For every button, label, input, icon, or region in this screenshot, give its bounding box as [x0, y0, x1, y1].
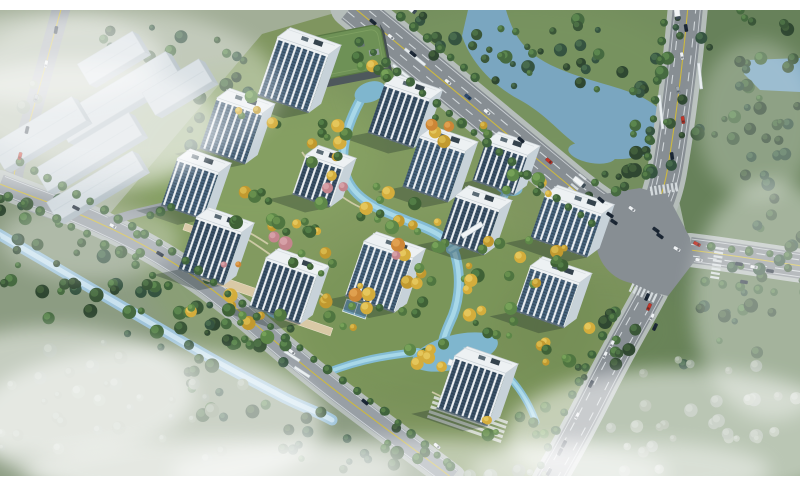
tree-highlight — [563, 64, 567, 68]
tree-highlight — [205, 320, 211, 326]
street-tree-highlight — [472, 74, 477, 79]
tree-highlight — [429, 51, 435, 57]
tree-highlight — [409, 198, 416, 205]
street-tree-highlight — [599, 333, 604, 338]
tree-highlight — [332, 120, 339, 127]
tree-highlight — [503, 186, 508, 191]
tree-highlight — [138, 308, 142, 312]
street-tree-highlight — [157, 208, 162, 213]
street-tree-highlight — [311, 357, 315, 361]
tree-highlight — [465, 275, 472, 282]
street-tree-highlight — [407, 79, 410, 82]
tree-highlight — [307, 157, 314, 164]
tree-highlight — [409, 221, 414, 226]
tree-highlight — [484, 416, 489, 421]
street-tree-highlight — [395, 420, 399, 424]
street-tree-highlight — [354, 388, 358, 392]
tree-highlight — [329, 260, 334, 265]
tree-highlight — [323, 294, 328, 299]
tree-highlight — [487, 47, 491, 51]
car-windshield — [682, 120, 685, 122]
tree-highlight — [275, 309, 282, 316]
street-tree-highlight — [565, 204, 569, 208]
tree-highlight — [298, 250, 302, 254]
tree-highlight — [533, 279, 538, 284]
tree-highlight — [222, 319, 228, 325]
tree-highlight — [510, 61, 513, 64]
tree-highlight — [572, 14, 579, 21]
tree-highlight — [374, 65, 380, 71]
car-windshield — [681, 56, 684, 58]
tree-highlight — [246, 341, 251, 346]
street-tree-highlight — [646, 136, 651, 141]
tree-highlight — [289, 258, 295, 264]
tree-highlight — [240, 187, 247, 194]
tree-highlight — [498, 26, 502, 30]
tree-highlight — [630, 121, 636, 127]
tree-highlight — [630, 88, 635, 93]
tree-highlight — [423, 352, 430, 359]
street-tree-highlight — [434, 100, 438, 104]
street-tree-highlight — [610, 314, 615, 319]
tree-highlight — [327, 171, 333, 177]
tree-highlight — [361, 303, 368, 310]
tree-highlight — [621, 182, 626, 187]
tree-highlight — [675, 357, 679, 361]
tree-highlight — [439, 136, 446, 143]
street-tree-highlight — [578, 212, 581, 215]
tree-highlight — [349, 303, 353, 307]
tree-highlight — [258, 189, 263, 194]
tree-highlight — [533, 173, 540, 180]
tree-highlight — [696, 33, 703, 40]
tree-highlight — [262, 332, 267, 337]
tree-highlight — [511, 83, 515, 87]
tree-highlight — [318, 129, 323, 134]
tree-highlight — [483, 429, 490, 436]
mist-patch — [0, 200, 180, 280]
tree-highlight — [412, 358, 419, 365]
tree-highlight — [594, 49, 600, 55]
street-tree-highlight — [459, 120, 463, 124]
tree-highlight — [418, 297, 424, 303]
tree-highlight — [419, 12, 424, 17]
tree-highlight — [664, 119, 667, 122]
car-windshield — [685, 28, 688, 30]
tree-highlight — [466, 263, 470, 267]
tree-highlight — [439, 339, 445, 345]
car-windshield — [671, 156, 674, 158]
tree-highlight — [506, 333, 509, 336]
tree-highlight — [492, 77, 496, 81]
tree-highlight — [679, 132, 683, 136]
tree-highlight — [513, 28, 517, 32]
tree-highlight — [602, 171, 606, 175]
street-tree-highlight — [651, 97, 654, 100]
street-tree-highlight — [254, 314, 258, 318]
tree-highlight — [269, 232, 275, 238]
tree-highlight — [174, 307, 182, 315]
tree-highlight — [432, 33, 438, 39]
tree-highlight — [318, 271, 322, 275]
tree-highlight — [592, 179, 596, 183]
street-tree-highlight — [461, 65, 465, 69]
tree-highlight — [577, 59, 582, 64]
tree-highlight — [344, 435, 349, 440]
tree-highlight — [418, 350, 424, 356]
street-tree-highlight — [437, 45, 442, 50]
tree-highlight — [125, 331, 129, 335]
street-tree-highlight — [420, 90, 424, 94]
tree-highlight — [151, 326, 159, 334]
tree-highlight — [576, 40, 582, 46]
tree-highlight — [742, 15, 746, 19]
street-tree-highlight — [447, 111, 451, 115]
tree-highlight — [483, 328, 489, 334]
street-tree-highlight — [225, 291, 229, 295]
tree-highlight — [630, 147, 638, 155]
tree-highlight — [238, 320, 242, 324]
tree-highlight — [340, 323, 344, 327]
tree-highlight — [553, 256, 558, 261]
street-tree-highlight — [589, 220, 593, 224]
tree-highlight — [617, 67, 624, 74]
tree-highlight — [505, 272, 511, 278]
scene-content — [0, 0, 800, 485]
tree-highlight — [538, 49, 541, 52]
tree-highlight — [136, 287, 142, 293]
tree-highlight — [585, 323, 592, 330]
tree-highlight — [386, 221, 394, 229]
tree-highlight — [143, 280, 149, 286]
street-tree-highlight — [5, 193, 10, 198]
tree-highlight — [412, 278, 418, 284]
street-tree-highlight — [383, 59, 388, 64]
tree-highlight — [484, 237, 490, 243]
street-tree-highlight — [297, 345, 301, 349]
tree-highlight — [623, 344, 630, 351]
street-tree-highlight — [397, 13, 402, 18]
tree-highlight — [399, 308, 404, 313]
tree-highlight — [616, 350, 621, 355]
street-tree-highlight — [448, 55, 452, 59]
tree-highlight — [415, 264, 421, 270]
tree-highlight — [495, 239, 501, 245]
tree-highlight — [279, 358, 285, 364]
tree-highlight — [305, 227, 312, 234]
street-tree-highlight — [659, 38, 663, 42]
tree-highlight — [595, 27, 598, 30]
tree-highlight — [319, 120, 324, 125]
street-tree-highlight — [471, 130, 474, 133]
tree-highlight — [480, 122, 484, 126]
tree-highlight — [542, 345, 548, 351]
tree-highlight — [582, 65, 588, 71]
tree-highlight — [377, 210, 382, 215]
tree-highlight — [232, 340, 238, 346]
street-tree-highlight — [168, 204, 172, 208]
tree-highlight — [44, 313, 51, 320]
tree-highlight — [537, 341, 543, 347]
tree-highlight — [69, 278, 75, 284]
tree-highlight — [283, 228, 288, 233]
tree-highlight — [205, 330, 208, 333]
street-tree-highlight — [645, 154, 649, 158]
screenshot-root — [0, 0, 800, 485]
tree-highlight — [444, 122, 450, 128]
tree-highlight — [780, 20, 785, 25]
street-tree-highlight — [657, 57, 661, 61]
tree-highlight — [508, 169, 515, 176]
tree-highlight — [308, 139, 314, 145]
aerial-render-canvas — [0, 0, 800, 485]
tree-highlight — [85, 305, 93, 313]
street-tree-highlight — [410, 23, 415, 28]
tree-highlight — [376, 304, 380, 308]
street-tree-highlight — [282, 335, 286, 339]
tree-highlight — [188, 305, 192, 309]
tree-highlight — [361, 203, 368, 210]
tree-highlight — [334, 137, 342, 145]
tree-highlight — [358, 283, 361, 286]
tree-highlight — [522, 61, 530, 69]
tree-highlight — [546, 191, 550, 195]
tree-highlight — [223, 335, 229, 341]
tree-highlight — [529, 50, 534, 55]
tree-highlight — [302, 218, 306, 222]
tree-highlight — [555, 44, 562, 51]
tree-highlight — [533, 189, 538, 194]
tree-highlight — [473, 320, 476, 323]
tree-highlight — [631, 131, 635, 135]
tree-highlight — [519, 172, 522, 175]
tree-highlight — [357, 213, 362, 218]
tree-highlight — [223, 304, 230, 311]
tree-highlight — [673, 25, 677, 29]
street-tree-highlight — [356, 38, 361, 43]
street-tree-highlight — [150, 273, 154, 277]
tree-highlight — [392, 239, 400, 247]
car-windshield — [677, 90, 680, 92]
tree-highlight — [249, 191, 256, 198]
tree-highlight — [656, 67, 664, 75]
street-tree-highlight — [538, 183, 541, 186]
street-tree-highlight — [211, 279, 215, 283]
bottom-white-band — [0, 476, 800, 485]
street-tree-highlight — [394, 69, 399, 74]
tree-highlight — [124, 306, 132, 314]
tree-highlight — [221, 262, 225, 266]
tree-highlight — [185, 341, 191, 347]
tree-highlight — [111, 286, 116, 291]
tree-highlight — [350, 289, 358, 297]
street-tree-highlight — [496, 149, 500, 153]
tree-highlight — [433, 115, 437, 119]
tree-highlight — [562, 245, 566, 249]
street-tree-highlight — [524, 171, 529, 176]
tree-highlight — [239, 312, 244, 317]
tree-highlight — [377, 197, 381, 201]
tree-highlight — [478, 245, 483, 250]
tree-highlight — [687, 360, 692, 365]
tree-highlight — [629, 164, 637, 172]
street-tree-highlight — [582, 364, 586, 368]
tree-highlight — [575, 364, 579, 368]
street-tree-highlight — [324, 366, 329, 371]
tree-highlight — [207, 302, 211, 306]
tree-highlight — [392, 252, 397, 257]
tree-highlight — [293, 220, 298, 225]
street-tree-highlight — [654, 77, 658, 81]
tree-highlight — [642, 147, 647, 152]
street-tree-highlight — [371, 50, 375, 54]
tree-highlight — [373, 183, 377, 187]
tree-highlight — [324, 134, 328, 138]
tree-highlight — [90, 289, 98, 297]
tree-highlight — [334, 152, 339, 157]
tree-highlight — [469, 42, 474, 47]
tree-highlight — [616, 174, 620, 178]
street-tree-highlight — [424, 35, 429, 40]
tree-highlight — [427, 120, 434, 127]
tree-highlight — [339, 183, 344, 188]
street-tree-highlight — [643, 172, 648, 177]
tree-highlight — [505, 303, 512, 310]
tree-highlight — [464, 309, 471, 316]
street-tree-highlight — [268, 324, 271, 327]
tree-highlight — [749, 18, 754, 23]
tree-highlight — [611, 359, 618, 366]
tree-highlight — [315, 198, 322, 205]
tree-highlight — [402, 276, 409, 283]
tree-highlight — [498, 53, 502, 57]
street-tree-highlight — [661, 20, 665, 24]
tree-highlight — [60, 279, 66, 285]
tree-highlight — [678, 95, 684, 101]
tree-highlight — [405, 344, 412, 351]
tree-highlight — [667, 160, 673, 166]
tree-highlight — [432, 242, 438, 248]
tree-highlight — [412, 309, 417, 314]
street-tree-highlight — [165, 282, 170, 287]
tree-highlight — [612, 187, 618, 193]
tree-highlight — [594, 87, 598, 91]
tree-highlight — [415, 228, 419, 232]
street-tree-highlight — [651, 116, 655, 120]
street-tree-highlight — [589, 352, 593, 356]
street-tree-highlight — [195, 267, 200, 272]
tree-highlight — [527, 70, 530, 73]
tree-highlight — [515, 252, 522, 259]
tree-highlight — [437, 362, 443, 368]
tree-highlight — [481, 55, 486, 60]
tree-highlight — [175, 322, 182, 329]
tree-highlight — [254, 339, 262, 347]
tree-highlight — [551, 246, 558, 253]
street-tree-highlight — [239, 301, 243, 305]
tree-highlight — [363, 288, 371, 296]
tree-highlight — [426, 345, 432, 351]
tree-highlight — [493, 430, 496, 433]
tree-highlight — [525, 44, 528, 47]
tree-highlight — [677, 32, 681, 36]
tree-highlight — [307, 264, 311, 268]
tree-highlight — [280, 237, 288, 245]
tree-highlight — [510, 317, 515, 322]
tree-highlight — [1, 280, 6, 285]
tree-highlight — [493, 331, 498, 336]
tree-highlight — [576, 78, 582, 84]
tree-highlight — [526, 237, 531, 242]
street-tree-highlight — [509, 158, 513, 162]
tree-highlight — [324, 311, 331, 318]
tree-highlight — [350, 324, 354, 328]
street-tree-highlight — [340, 378, 344, 382]
tree-highlight — [236, 262, 239, 265]
tree-highlight — [383, 74, 388, 79]
tree-highlight — [265, 198, 269, 202]
tree-highlight — [472, 30, 478, 36]
tree-highlight — [646, 127, 651, 132]
street-tree-highlight — [183, 258, 187, 262]
tree-highlight — [232, 216, 236, 220]
tree-highlight — [36, 286, 44, 294]
tree-highlight — [477, 306, 482, 311]
street-tree-highlight — [381, 408, 386, 413]
tree-highlight — [434, 219, 438, 223]
top-white-band — [0, 0, 800, 10]
tree-highlight — [449, 33, 457, 41]
tree-highlight — [383, 187, 390, 194]
tree-highlight — [427, 277, 432, 282]
tree-highlight — [353, 52, 360, 59]
tree-highlight — [273, 217, 281, 225]
tree-highlight — [367, 61, 374, 68]
tree-highlight — [550, 28, 554, 32]
tree-highlight — [323, 183, 329, 189]
street-tree-highlight — [483, 139, 488, 144]
street-tree-highlight — [368, 399, 371, 402]
tree-highlight — [543, 359, 547, 363]
tree-highlight — [574, 22, 580, 28]
tree-highlight — [321, 248, 327, 254]
tree-highlight — [108, 280, 114, 286]
street-tree-highlight — [553, 195, 557, 199]
tree-highlight — [630, 325, 637, 332]
tree-highlight — [599, 316, 607, 324]
street-tree-highlight — [21, 201, 25, 205]
tree-highlight — [358, 62, 363, 67]
tree-highlight — [242, 336, 246, 340]
tree-highlight — [562, 355, 566, 359]
tree-highlight — [707, 44, 711, 48]
street-tree-highlight — [408, 430, 413, 435]
tree-highlight — [582, 375, 586, 379]
